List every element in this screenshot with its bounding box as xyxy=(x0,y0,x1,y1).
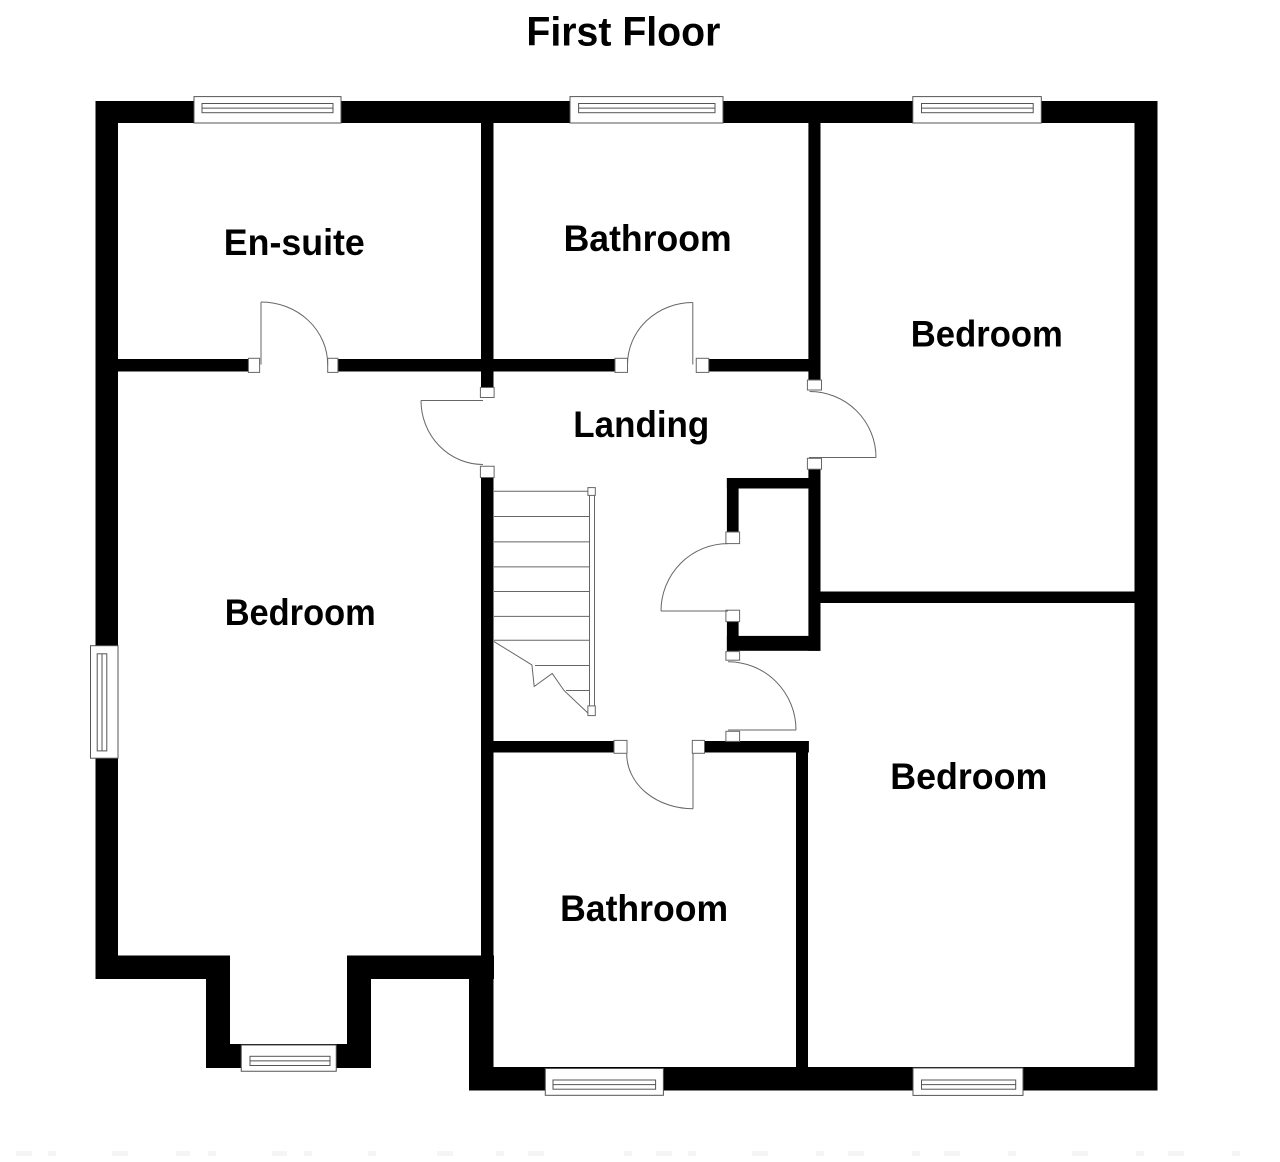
svg-text:Bedroom: Bedroom xyxy=(911,313,1063,355)
svg-text:En-suite: En-suite xyxy=(224,221,365,263)
svg-text:Bedroom: Bedroom xyxy=(890,755,1047,797)
svg-text:First Floor: First Floor xyxy=(526,8,720,54)
svg-text:Landing: Landing xyxy=(573,403,709,445)
svg-text:Bathroom: Bathroom xyxy=(564,217,732,259)
svg-text:Bathroom: Bathroom xyxy=(560,887,728,929)
svg-text:Bedroom: Bedroom xyxy=(225,591,376,633)
